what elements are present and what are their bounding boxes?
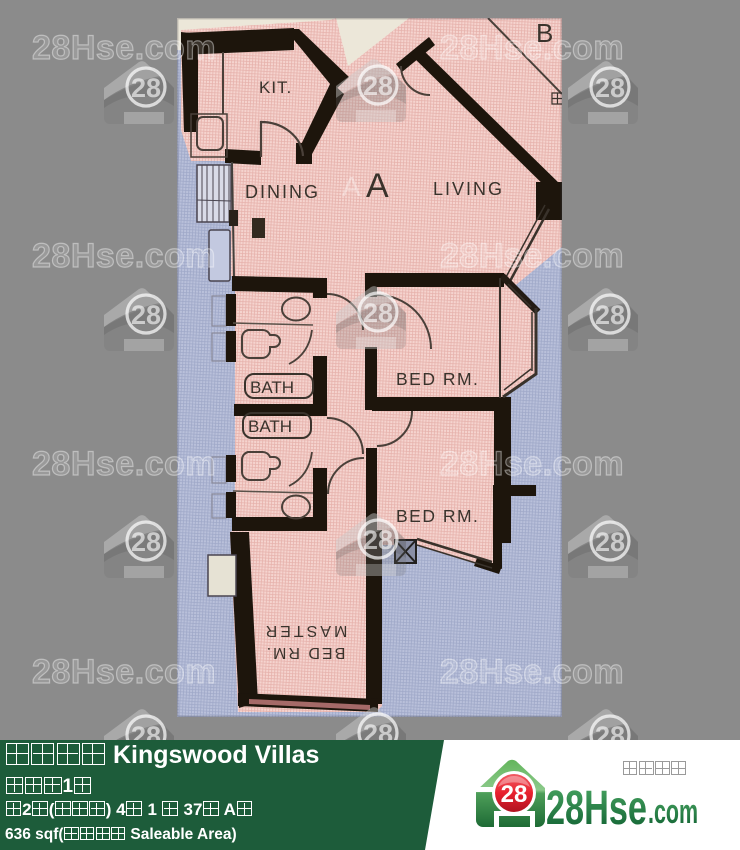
svg-text:MASTER: MASTER xyxy=(263,622,348,639)
svg-text:A: A xyxy=(342,171,361,202)
svg-text:KIT.: KIT. xyxy=(259,78,292,97)
svg-text:28Hse: 28Hse xyxy=(546,782,647,835)
svg-text:28: 28 xyxy=(501,781,528,808)
svg-text:B: B xyxy=(536,18,553,48)
svg-text:A: A xyxy=(366,167,389,205)
svg-text:BED RM.: BED RM. xyxy=(396,369,479,389)
svg-text:BATH: BATH xyxy=(248,417,292,436)
svg-text:.com: .com xyxy=(648,793,698,831)
svg-text:BED RM.: BED RM. xyxy=(265,644,346,661)
svg-text:DINING: DINING xyxy=(245,182,320,202)
svg-text:LIVING: LIVING xyxy=(433,179,504,199)
svg-text:BATH: BATH xyxy=(250,378,294,397)
svg-text:BED RM.: BED RM. xyxy=(396,506,479,526)
